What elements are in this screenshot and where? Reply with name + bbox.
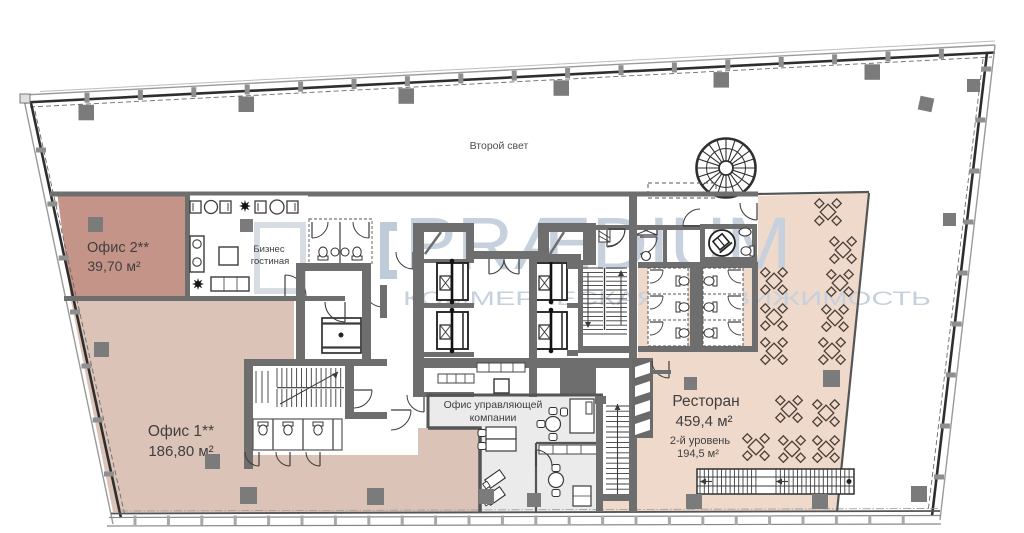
svg-text:гостиная: гостиная [251, 256, 290, 267]
svg-text:Бизнес: Бизнес [253, 244, 284, 255]
svg-text:2-й уровень: 2-й уровень [670, 435, 731, 447]
svg-text:Ресторан: Ресторан [672, 393, 739, 410]
svg-text:186,80 м²: 186,80 м² [148, 443, 213, 460]
svg-text:компании: компании [470, 412, 517, 424]
svg-text:Офис 2**: Офис 2** [87, 240, 149, 256]
svg-text:Второй свет: Второй свет [470, 140, 529, 152]
svg-text:459,4 м²: 459,4 м² [675, 413, 732, 430]
svg-text:39,70 м²: 39,70 м² [87, 258, 141, 274]
svg-text:Офис управляющей: Офис управляющей [444, 399, 543, 411]
svg-text:194,5 м²: 194,5 м² [677, 448, 719, 460]
svg-text:Офис 1**: Офис 1** [148, 423, 214, 440]
